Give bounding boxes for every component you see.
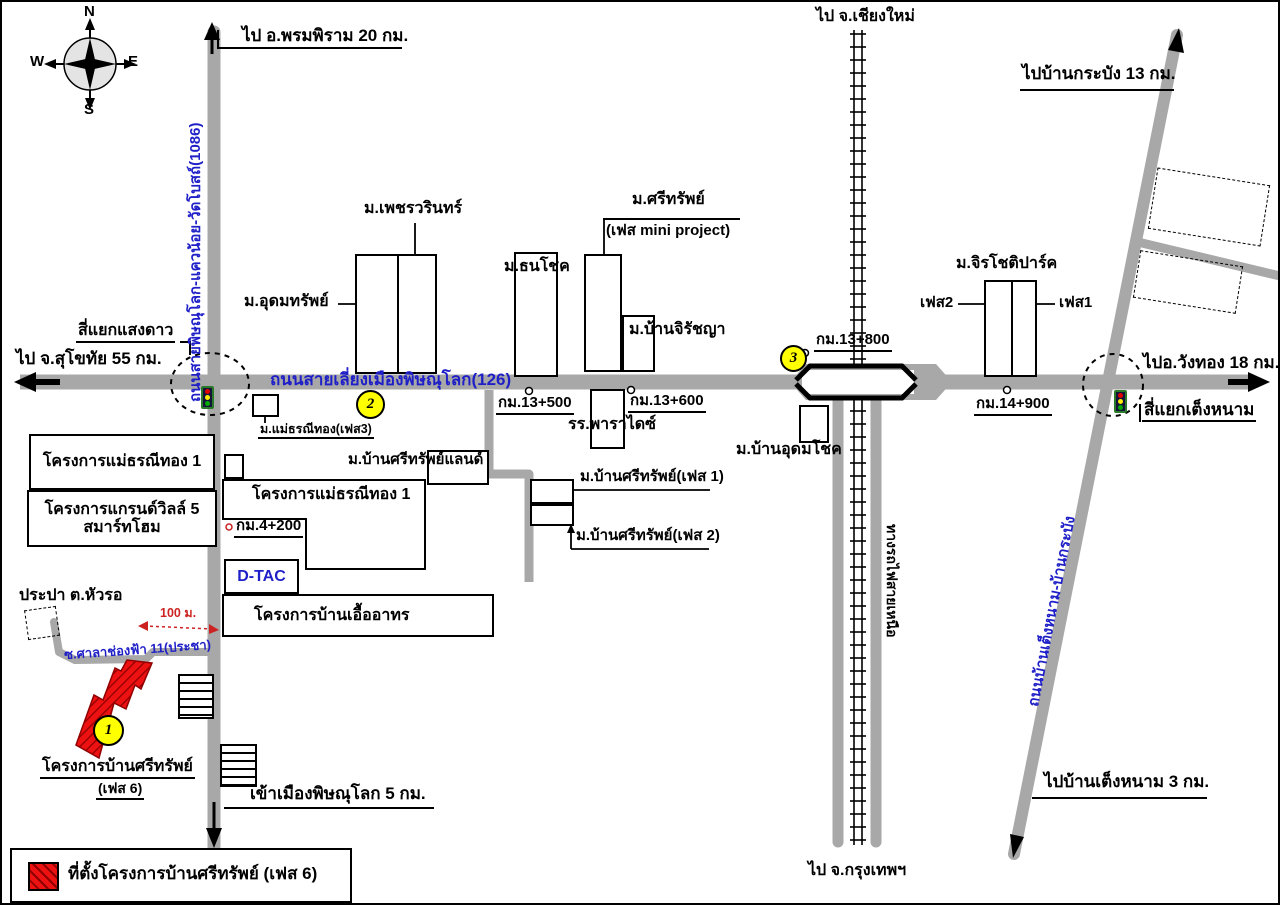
traffic-light-icon [201, 386, 214, 409]
building-srisap-phase1 [530, 479, 574, 504]
km-marker-13-800: กม.13+800 [814, 332, 892, 352]
direction-phromphiram: ไป อ.พรมพิราม 20 กม. [242, 26, 408, 45]
place-maethorani-phase3: ม.แม่ธรณีทอง(เฟส3) [258, 422, 374, 439]
intersection-tengnam-label: สี่แยกเต็งหนาม [1142, 400, 1256, 422]
intersection-saengdao-label: สี่แยกแสงดาว [76, 322, 175, 343]
legend: ที่ตั้งโครงการบ้านศรีทรัพย์ (เฟส 6) [10, 848, 352, 903]
direction-ban-tengnam: ไปบ้านเต็งหนาม 3 กม. [1044, 772, 1209, 791]
grandville-label-line2: สมาร์ทโฮม [83, 519, 160, 537]
housing-rows-north [178, 674, 214, 719]
direction-bangkok: ไป จ.กรุงเทพฯ [808, 862, 906, 880]
housing-rows-south [220, 744, 257, 787]
road-tengnam-krabang [1014, 35, 1177, 854]
km4200-dot [226, 524, 232, 530]
road-label-northern-railway: ทางรถไฟสายเหนือ [883, 524, 899, 637]
distance-100m-arrow [138, 621, 219, 634]
site-label-line2: (เฟส 6) [96, 781, 144, 800]
place-jirachoti-phase1: เฟส1 [1059, 295, 1092, 312]
place-jirachotipark: ม.จิรโชติปาร์ค [956, 255, 1057, 273]
place-udomsap: ม.อุดมทรัพย์ [244, 293, 329, 311]
bridge-deck [802, 370, 914, 394]
building-small-corner [224, 454, 244, 479]
place-jiratchaya: ม.บ้านจิรัชญา [629, 321, 726, 339]
prapa-building-outline [24, 606, 60, 640]
distance-100m-label: 100 ม. [160, 606, 196, 620]
direction-city: เข้าเมืองพิษณุโลก 5 กม. [250, 784, 426, 803]
building-grandville: โครงการแกรนด์วิลล์ 5 สมาร์ทโฮม [27, 490, 217, 547]
badge-bypass-2: 2 [356, 390, 385, 419]
place-maethorani1-east: โครงการแม่ธรณีทอง 1 [252, 486, 410, 504]
legend-text: ที่ตั้งโครงการบ้านศรีทรัพย์ (เฟส 6) [68, 864, 317, 883]
direction-ban-krabang: ไปบ้านกระบัง 13 กม. [1022, 64, 1176, 83]
place-srisap-phase2: ม.บ้านศรีทรัพย์(เฟส 2) [576, 528, 720, 545]
place-jirachoti-phase2: เฟส2 [920, 295, 953, 312]
legend-site-swatch [28, 862, 59, 891]
place-phetwarin: ม.เพชรวรินทร์ [364, 200, 462, 218]
railway-north-segment [850, 30, 866, 364]
building-jirachotipark [984, 280, 1037, 377]
road-srisap-access [489, 390, 529, 582]
direction-sukhothai: ไป จ.สุโขทัย 55 กม. [16, 349, 162, 368]
compass-north-label: N [84, 4, 95, 21]
building-srisap-phase2 [530, 504, 574, 526]
building-srisap-mini [584, 254, 622, 372]
place-srisap: ม.ศรีทรัพย์ [632, 191, 705, 209]
road-label-bypass-126: ถนนสายเลี่ยงเมืองพิษณุโลก(126) [270, 370, 511, 389]
building-maethorani1-west: โครงการแม่ธรณีทอง 1 [29, 434, 215, 490]
grandville-label-line1: โครงการแกรนด์วิลล์ 5 [45, 501, 200, 519]
traffic-light-icon [1114, 390, 1127, 413]
compass-west-label: W [30, 54, 44, 71]
direction-wangthong: ไปอ.วังทอง 18 กม. [1143, 353, 1279, 372]
railway-south-segment [850, 400, 866, 845]
badge-site-1: 1 [93, 715, 124, 746]
badge-bridge-3: 3 [780, 345, 807, 372]
compass-south-label: S [84, 102, 94, 119]
km-marker-13-500: กม.13+500 [496, 395, 574, 415]
location-map: N W E S โครงการแม่ธรณีทอง 1 โครงการแกรนด… [0, 0, 1280, 905]
place-prapa-huaro: ประปา ต.หัวรอ [19, 587, 123, 605]
uea-athon-label: โครงการบ้านเอื้ออาทร [254, 607, 409, 625]
place-srisap-mini: (เฟส mini project) [606, 223, 730, 240]
dtac-label: D-TAC [237, 568, 286, 586]
place-srisap-phase1: ม.บ้านศรีทรัพย์(เฟส 1) [580, 469, 724, 486]
site-label-line1: โครงการบ้านศรีทรัพย์ [40, 758, 195, 779]
km-marker-14-900: กม.14+900 [974, 396, 1052, 416]
place-paradise-school: รร.พาราไดซ์ [568, 416, 656, 434]
building-maethorani-phase3 [252, 394, 279, 417]
building-udomsap-phetwarin [355, 254, 437, 374]
building-ban-udomchok [799, 405, 829, 443]
road-label-route-1086: ถนนสายพิษณุโลก-แควน้อย-วัดโบสถ์(1086) [188, 123, 205, 403]
place-ban-udomchok: ม.บ้านอุดมโชค [736, 441, 842, 459]
compass-rose [44, 18, 136, 110]
maethorani1-west-label: โครงการแม่ธรณีทอง 1 [43, 453, 201, 471]
direction-chiangmai: ไป จ.เชียงใหม่ [816, 8, 915, 26]
compass-east-label: E [128, 54, 138, 71]
km-marker-4-200: กม.4+200 [234, 518, 303, 538]
place-srisap-land: ม.บ้านศรีทรัพย์แลนด์ [348, 452, 483, 469]
building-dtac: D-TAC [224, 559, 299, 594]
building-uea-athon: โครงการบ้านเอื้ออาทร [222, 594, 494, 637]
place-thanachok: ม.ธนโชค [504, 258, 570, 276]
km-marker-13-600: กม.13+600 [628, 393, 706, 413]
km14900-dot [1004, 387, 1011, 394]
